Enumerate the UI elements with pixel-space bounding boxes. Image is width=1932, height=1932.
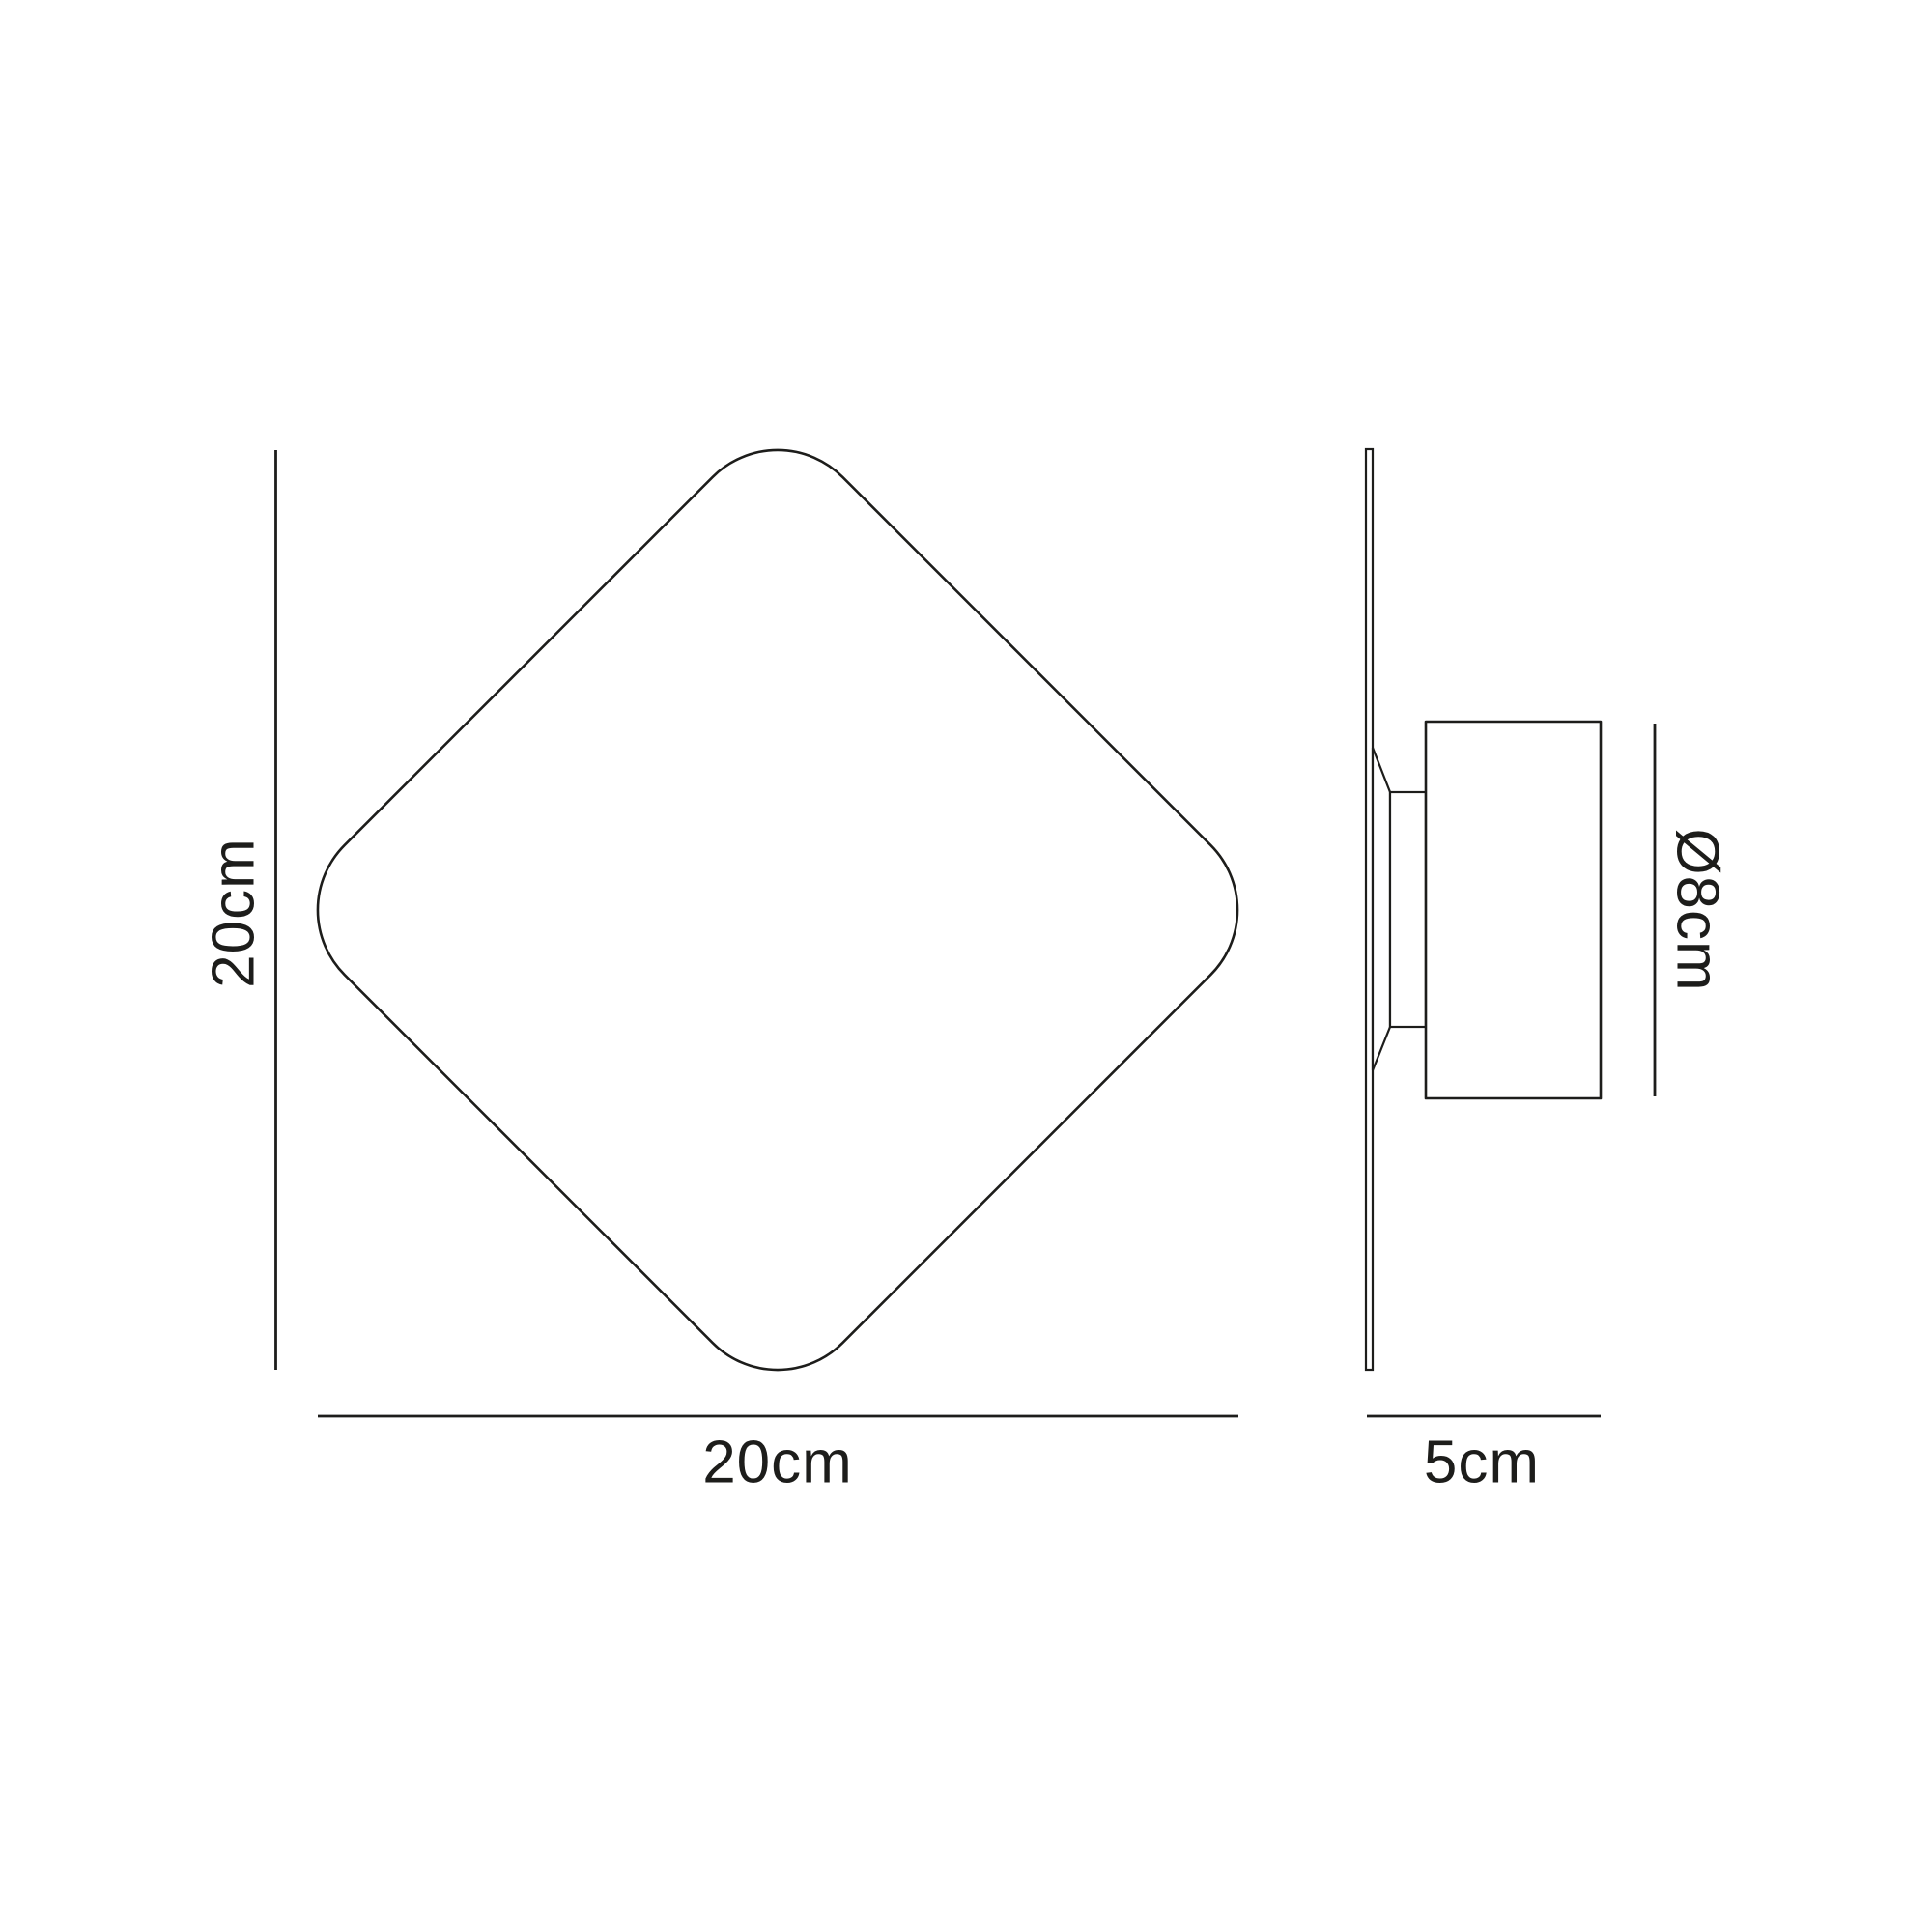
width-dimension-label: 20cm xyxy=(702,1430,853,1496)
drawing-page: 20cm 20cm Ø8cm 5cm xyxy=(0,0,1932,1932)
front-view-diamond-outline xyxy=(318,450,1237,1370)
side-view-mount-cone xyxy=(1373,748,1390,1070)
side-view-cylinder-body xyxy=(1426,722,1601,1098)
depth-dimension-label: 5cm xyxy=(1424,1430,1540,1496)
side-view-neck xyxy=(1390,792,1426,1027)
dimension-drawing: 20cm 20cm Ø8cm 5cm xyxy=(0,0,1932,1932)
diameter-dimension-label: Ø8cm xyxy=(1664,828,1731,991)
height-dimension-label: 20cm xyxy=(201,838,268,988)
